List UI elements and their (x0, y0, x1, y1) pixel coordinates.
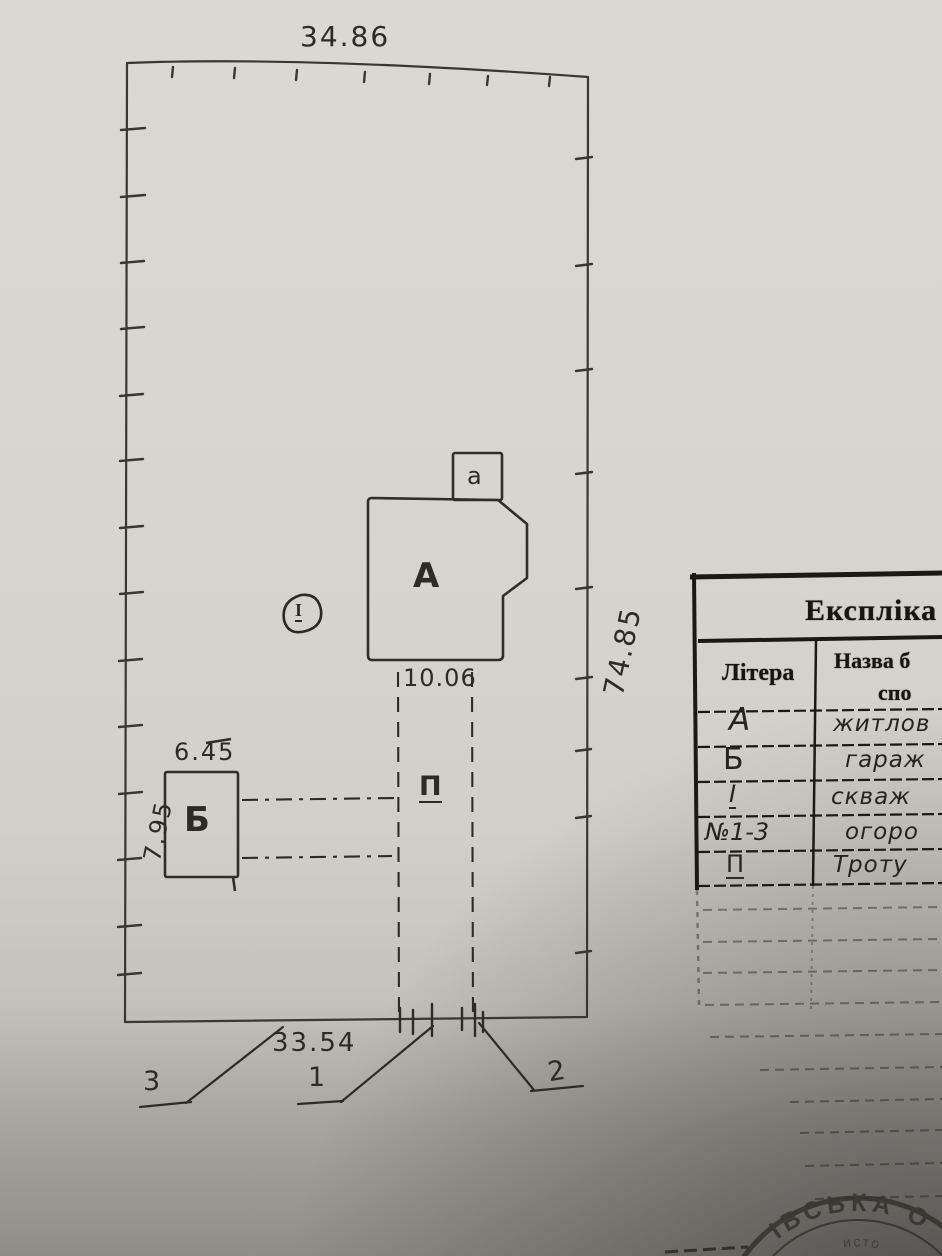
legend-title: Експліка (805, 594, 937, 628)
round-stamp: ІВСЬКА О исто (718, 1189, 942, 1256)
marker-3-label: 3 (143, 1066, 160, 1097)
plan-drawing: ІВСЬКА О исто (0, 0, 942, 1256)
dimension-top: 34.86 (300, 20, 390, 53)
legend-row-name: Троту (833, 852, 908, 878)
building-a-dimension: 10.06 (403, 664, 477, 692)
legend-col-letter-header: Літера (722, 660, 794, 687)
legend-row-letter: №1-3 (705, 818, 769, 846)
legend-table-lines (665, 573, 942, 1252)
marker-1-label: 1 (308, 1062, 325, 1093)
stamp-inner-text: исто (842, 1233, 883, 1251)
legend-row-name: скваж (831, 784, 911, 810)
building-a-label: А (413, 556, 439, 596)
legend-row-name: житлов (833, 711, 930, 737)
gate-ticks (400, 1004, 483, 1036)
legend-col-name-header-line1: Назва б (834, 648, 910, 674)
well-symbol (284, 595, 322, 632)
annex-a-label: а (467, 462, 482, 490)
walkway-lines (242, 672, 473, 1016)
svg-text:исто: исто (842, 1233, 883, 1251)
legend-row-letter: А (729, 702, 750, 738)
legend-row-name: гараж (845, 747, 926, 773)
marker-leaders (140, 1023, 583, 1107)
building-b-label: Б (184, 800, 210, 840)
well-label: І (295, 601, 302, 622)
legend-col-name-header-line2: спо (878, 680, 911, 706)
legend-row-name: огоро (845, 819, 919, 845)
building-a-outline (368, 453, 527, 660)
legend-row-letter: Б (723, 742, 744, 777)
legend-row-letter: І (729, 782, 736, 809)
dimension-bottom: 33.54 (272, 1028, 356, 1058)
walkway-label: П (419, 773, 442, 803)
scanned-site-plan: ІВСЬКА О исто 34.86 74.85 33.54 А а 10.0… (0, 0, 942, 1256)
building-b-width-dimension: 6.45 (174, 738, 235, 766)
legend-row-letter: П (726, 852, 744, 879)
